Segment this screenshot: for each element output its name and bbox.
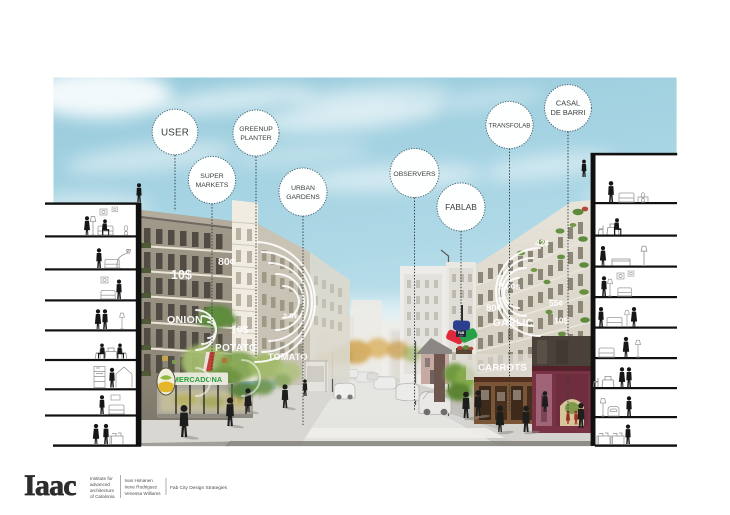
- svg-text:FABLAB: FABLAB: [445, 202, 477, 212]
- svg-text:GREENUP: GREENUP: [239, 126, 273, 133]
- svg-text:SUPER: SUPER: [200, 173, 224, 180]
- svg-text:GARDENS: GARDENS: [286, 194, 320, 201]
- svg-text:Iaac: Iaac: [24, 469, 76, 502]
- svg-text:TRANSFOLAB: TRANSFOLAB: [489, 123, 531, 130]
- svg-text:GARLIC: GARLIC: [493, 318, 533, 329]
- svg-text:MARKETS: MARKETS: [196, 182, 229, 189]
- svg-text:CASAL: CASAL: [556, 99, 580, 108]
- svg-text:Institute for: Institute for: [90, 476, 113, 481]
- svg-text:CITY: CITY: [459, 336, 464, 338]
- svg-text:Irene Rodriguez: Irene Rodriguez: [125, 485, 158, 490]
- svg-text:TOMATO: TOMATO: [268, 352, 308, 362]
- svg-text:2.0¢: 2.0¢: [283, 312, 298, 321]
- svg-text:MERCADONA: MERCADONA: [173, 375, 223, 384]
- svg-text:Venessa Williams: Venessa Williams: [125, 491, 162, 496]
- svg-text:Ivan Himanen: Ivan Himanen: [125, 478, 154, 483]
- svg-text:CARROTS: CARROTS: [478, 363, 527, 374]
- svg-text:10$: 10$: [231, 324, 249, 336]
- svg-text:80¢: 80¢: [486, 303, 503, 314]
- svg-text:OBSERVERS: OBSERVERS: [393, 171, 436, 178]
- svg-text:FAB: FAB: [458, 331, 465, 335]
- svg-text:10$: 10$: [171, 268, 192, 282]
- svg-text:advanced: advanced: [90, 482, 110, 487]
- svg-text:42¢: 42¢: [535, 238, 549, 248]
- svg-text:of Catalonia: of Catalonia: [90, 494, 115, 499]
- svg-text:USER: USER: [161, 128, 189, 139]
- svg-text:URBAN: URBAN: [291, 185, 315, 192]
- svg-text:POTATO: POTATO: [215, 343, 257, 354]
- svg-text:DE BARRI: DE BARRI: [551, 108, 586, 117]
- svg-text:PLANTER: PLANTER: [240, 135, 271, 142]
- svg-text:ONION: ONION: [167, 314, 203, 326]
- svg-text:55¢: 55¢: [549, 298, 563, 308]
- svg-text:80¢: 80¢: [218, 256, 236, 268]
- svg-text:10$: 10$: [554, 316, 568, 326]
- svg-text:architecture: architecture: [90, 488, 114, 493]
- svg-text:Fab City Design Strategies: Fab City Design Strategies: [170, 485, 228, 491]
